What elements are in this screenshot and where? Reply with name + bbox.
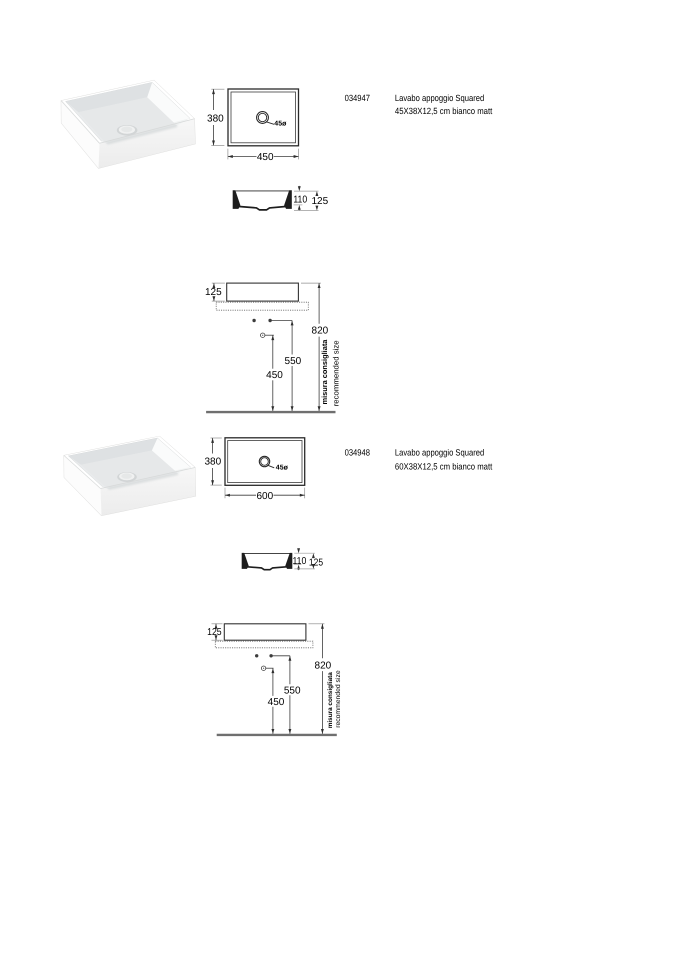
svg-text:Lavabo appoggio Squared: Lavabo appoggio Squared — [395, 93, 484, 103]
svg-text:820: 820 — [312, 326, 329, 337]
svg-text:450: 450 — [266, 370, 283, 381]
svg-text:034948: 034948 — [345, 447, 370, 457]
svg-text:125: 125 — [205, 287, 222, 298]
svg-text:550: 550 — [284, 685, 301, 696]
svg-text:60X38X12,5 cm bianco matt: 60X38X12,5 cm bianco matt — [395, 461, 493, 471]
svg-text:recommended size: recommended size — [332, 340, 341, 406]
svg-text:110: 110 — [293, 556, 307, 567]
svg-text:820: 820 — [315, 660, 332, 671]
svg-text:450: 450 — [268, 697, 285, 708]
svg-text:45ø: 45ø — [274, 120, 287, 127]
svg-text:125: 125 — [207, 627, 222, 638]
svg-text:125: 125 — [311, 196, 328, 207]
svg-text:45X38X12,5 cm bianco matt: 45X38X12,5 cm bianco matt — [395, 106, 493, 116]
svg-text:125: 125 — [309, 557, 324, 568]
svg-text:misura consigliata: misura consigliata — [320, 339, 329, 405]
svg-text:380: 380 — [207, 114, 224, 125]
svg-text:110: 110 — [293, 195, 307, 206]
svg-text:Lavabo appoggio Squared: Lavabo appoggio Squared — [395, 447, 484, 457]
svg-text:034947: 034947 — [345, 93, 370, 103]
svg-text:45ø: 45ø — [276, 465, 289, 472]
svg-text:misura consigliata: misura consigliata — [327, 672, 334, 729]
svg-text:600: 600 — [256, 491, 273, 502]
svg-text:450: 450 — [257, 152, 274, 163]
svg-text:recommended size: recommended size — [335, 670, 342, 728]
svg-text:380: 380 — [204, 457, 221, 468]
svg-text:550: 550 — [285, 356, 302, 367]
